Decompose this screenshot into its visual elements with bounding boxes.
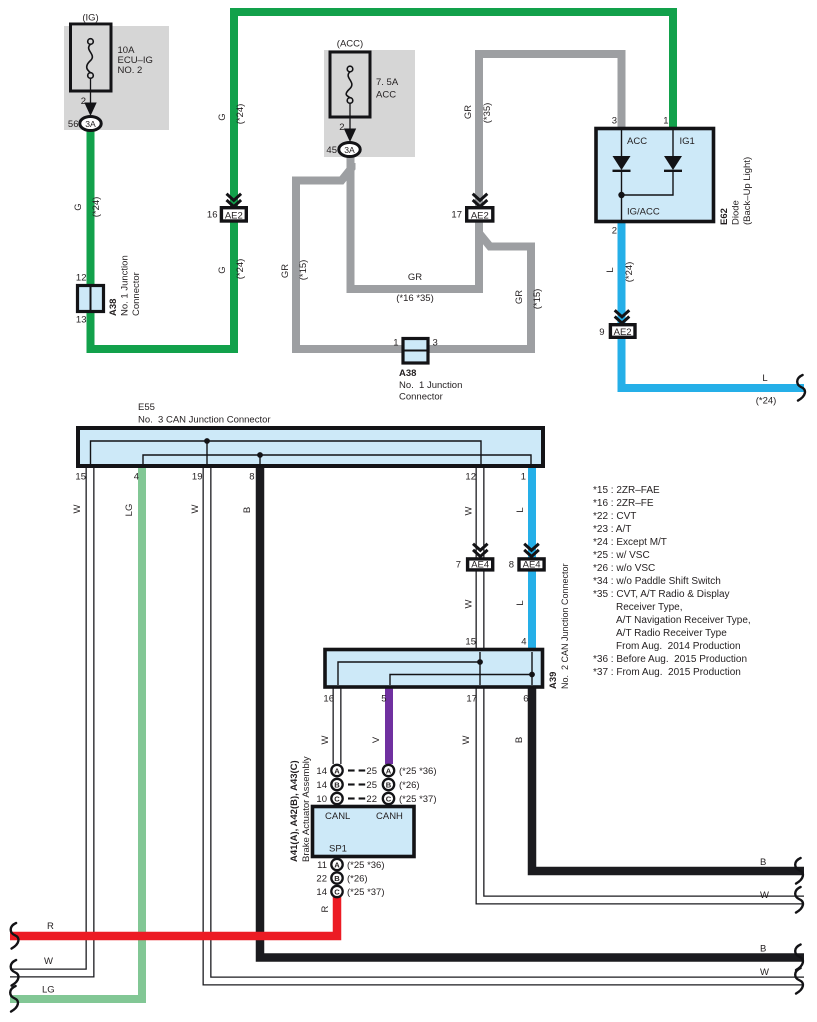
svg-text:E62: E62 (719, 208, 730, 225)
svg-text:A/T Radio Receiver Type: A/T Radio Receiver Type (616, 628, 727, 639)
svg-text:5: 5 (381, 694, 386, 705)
svg-text:45: 45 (326, 145, 337, 156)
svg-text:W: W (464, 599, 475, 608)
svg-text:No. 1 Junction: No. 1 Junction (120, 255, 131, 316)
svg-text:(*16 *35): (*16 *35) (396, 293, 434, 304)
svg-text:CANL: CANL (325, 811, 350, 822)
svg-text:22: 22 (366, 794, 377, 805)
svg-text:Diode: Diode (731, 200, 742, 225)
svg-text:B: B (514, 737, 525, 743)
svg-text:Connector: Connector (399, 392, 443, 403)
svg-text:R: R (320, 905, 331, 912)
svg-text:L: L (762, 373, 767, 384)
svg-text:7. 5A: 7. 5A (376, 77, 399, 88)
svg-text:(Back–Up Light): (Back–Up Light) (742, 157, 753, 225)
svg-text:AE4: AE4 (523, 560, 541, 571)
svg-text:W: W (44, 956, 53, 967)
svg-text:7: 7 (456, 560, 461, 571)
svg-text:W: W (760, 890, 769, 901)
svg-text:3A: 3A (344, 145, 355, 155)
svg-text:GR: GR (463, 105, 474, 119)
svg-text:GR: GR (514, 290, 525, 304)
svg-text:W: W (464, 506, 475, 515)
svg-text:(ACC): (ACC) (337, 39, 363, 50)
svg-text:AE4: AE4 (471, 560, 489, 571)
svg-text:4: 4 (521, 637, 526, 648)
svg-text:14: 14 (316, 766, 327, 777)
svg-text:E55: E55 (138, 402, 155, 413)
svg-text:A41(A), A42(B), A43(C): A41(A), A42(B), A43(C) (289, 760, 300, 862)
svg-text:15: 15 (75, 472, 86, 483)
svg-text:AE2: AE2 (225, 210, 243, 221)
svg-text:(*26): (*26) (399, 780, 420, 791)
svg-text:(*15): (*15) (532, 289, 543, 310)
svg-text:L: L (515, 600, 526, 605)
svg-text:B: B (760, 944, 766, 955)
svg-text:(*26): (*26) (347, 873, 368, 884)
svg-text:16: 16 (323, 694, 334, 705)
svg-text:A38: A38 (399, 368, 416, 379)
svg-text:2: 2 (612, 226, 617, 237)
svg-text:ACC: ACC (376, 90, 396, 101)
svg-text:LG: LG (42, 985, 55, 996)
svg-text:(*24): (*24) (235, 259, 246, 280)
svg-text:Receiver Type,: Receiver Type, (616, 602, 683, 613)
svg-text:C: C (386, 794, 392, 803)
svg-text:V: V (371, 736, 382, 743)
svg-text:9: 9 (599, 327, 604, 338)
svg-text:R: R (47, 921, 54, 932)
svg-text:From Aug. 2014 Production: From Aug. 2014 Production (616, 641, 741, 652)
svg-text:1: 1 (393, 338, 398, 349)
svg-text:*24 : Except M/T: *24 : Except M/T (593, 537, 667, 548)
svg-text:(*24): (*24) (624, 262, 635, 283)
svg-text:G: G (217, 266, 228, 273)
svg-text:A39: A39 (548, 672, 559, 689)
svg-text:25: 25 (366, 766, 377, 777)
svg-text:(*24): (*24) (91, 197, 102, 218)
svg-text:IG/ACC: IG/ACC (627, 207, 660, 218)
svg-text:16: 16 (207, 210, 218, 221)
svg-text:*25 : w/ VSC: *25 : w/ VSC (593, 550, 650, 561)
svg-text:1: 1 (663, 116, 668, 127)
svg-text:No. 1 Junction: No. 1 Junction (399, 380, 462, 391)
svg-text:L: L (515, 507, 526, 512)
svg-text:6: 6 (523, 694, 528, 705)
svg-text:W: W (190, 504, 201, 513)
svg-text:W: W (461, 735, 472, 744)
svg-text:No. 2 CAN Junction Connector: No. 2 CAN Junction Connector (560, 563, 570, 689)
svg-text:(*35): (*35) (482, 103, 493, 124)
svg-text:4: 4 (134, 472, 139, 483)
svg-text:A: A (334, 860, 340, 869)
svg-text:C: C (334, 794, 340, 803)
svg-text:*22 : CVT: *22 : CVT (593, 511, 636, 522)
svg-text:25: 25 (366, 780, 377, 791)
svg-text:SP1: SP1 (329, 844, 347, 855)
svg-text:AE2: AE2 (614, 327, 632, 338)
svg-text:3: 3 (612, 116, 617, 127)
svg-text:(*25 *37): (*25 *37) (347, 887, 385, 898)
svg-text:*37 : From Aug. 2015 Producti: *37 : From Aug. 2015 Production (593, 667, 741, 678)
svg-text:*16 : 2ZR–FE: *16 : 2ZR–FE (593, 498, 654, 509)
svg-text:B: B (334, 780, 340, 789)
svg-text:17: 17 (451, 210, 462, 221)
svg-text:B: B (334, 874, 340, 883)
svg-text:(*25 *37): (*25 *37) (399, 794, 437, 805)
svg-text:10: 10 (316, 794, 327, 805)
svg-text:3A: 3A (85, 119, 96, 129)
svg-text:NO. 2: NO. 2 (118, 65, 143, 76)
svg-text:*35 : CVT, A/T Radio & Display: *35 : CVT, A/T Radio & Display (593, 589, 730, 600)
svg-text:B: B (386, 780, 392, 789)
svg-text:A: A (334, 766, 340, 775)
svg-text:(*24): (*24) (756, 396, 777, 407)
svg-text:No. 3 CAN Junction Connector: No. 3 CAN Junction Connector (138, 415, 271, 426)
svg-text:W: W (72, 504, 83, 513)
svg-text:56: 56 (68, 119, 79, 130)
svg-text:22: 22 (316, 873, 327, 884)
svg-text:A38: A38 (108, 299, 119, 316)
svg-text:(*25 *36): (*25 *36) (399, 766, 437, 777)
svg-text:1: 1 (521, 472, 526, 483)
svg-text:14: 14 (316, 780, 327, 791)
svg-text:L: L (605, 267, 616, 272)
svg-text:*34 : w/o Paddle Shift Switch: *34 : w/o Paddle Shift Switch (593, 576, 721, 587)
svg-text:*36 : Before Aug. 2015 Produc: *36 : Before Aug. 2015 Production (593, 654, 747, 665)
svg-text:*26 : w/o VSC: *26 : w/o VSC (593, 563, 655, 574)
svg-text:14: 14 (316, 887, 327, 898)
svg-text:(*15): (*15) (298, 260, 309, 281)
svg-text:B: B (760, 857, 766, 868)
svg-text:GR: GR (408, 272, 422, 283)
svg-text:*15 : 2ZR–FAE: *15 : 2ZR–FAE (593, 485, 660, 496)
svg-text:IG1: IG1 (680, 136, 695, 147)
svg-text:LG: LG (124, 504, 135, 517)
svg-text:ACC: ACC (627, 136, 647, 147)
svg-text:CANH: CANH (376, 811, 403, 822)
svg-text:Brake Actuator Assembly: Brake Actuator Assembly (301, 756, 312, 862)
svg-text:8: 8 (509, 560, 514, 571)
svg-text:GR: GR (280, 264, 291, 278)
svg-text:17: 17 (466, 694, 477, 705)
svg-text:12: 12 (76, 273, 87, 284)
svg-text:2: 2 (81, 96, 86, 107)
svg-text:W: W (320, 735, 331, 744)
svg-text:8: 8 (249, 472, 254, 483)
svg-text:A/T Navigation Receiver Type,: A/T Navigation Receiver Type, (616, 615, 751, 626)
svg-text:G: G (217, 113, 228, 120)
svg-text:2: 2 (339, 122, 344, 133)
svg-text:11: 11 (317, 860, 327, 871)
svg-text:*23 : A/T: *23 : A/T (593, 524, 631, 535)
svg-text:G: G (73, 203, 84, 210)
svg-text:19: 19 (192, 472, 203, 483)
svg-text:(*25 *36): (*25 *36) (347, 860, 385, 871)
svg-text:(IG): (IG) (82, 13, 98, 24)
svg-text:B: B (242, 507, 253, 513)
svg-text:3: 3 (433, 338, 438, 349)
svg-text:(*24): (*24) (235, 104, 246, 125)
svg-text:C: C (334, 887, 340, 896)
svg-text:Connector: Connector (131, 272, 142, 316)
svg-text:13: 13 (76, 315, 87, 326)
svg-text:15: 15 (465, 637, 476, 648)
svg-text:W: W (760, 967, 769, 978)
svg-text:A: A (386, 766, 392, 775)
svg-text:AE2: AE2 (471, 210, 489, 221)
svg-text:12: 12 (465, 472, 476, 483)
